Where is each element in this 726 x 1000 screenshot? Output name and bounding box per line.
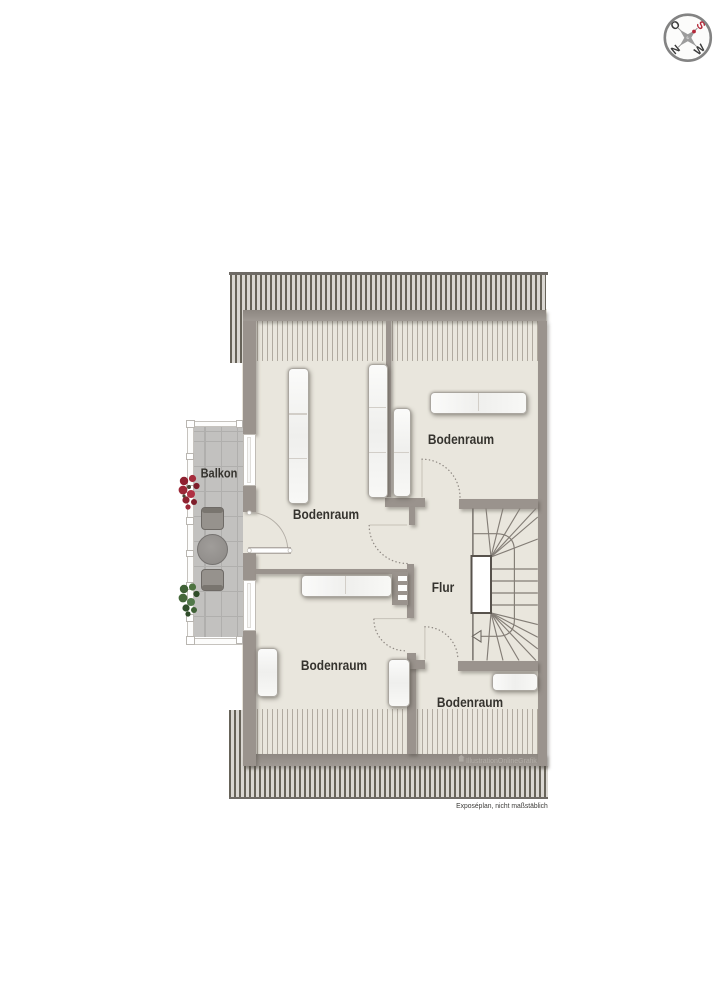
svg-text:IllustrationOnlineGrafik: IllustrationOnlineGrafik bbox=[466, 758, 537, 765]
